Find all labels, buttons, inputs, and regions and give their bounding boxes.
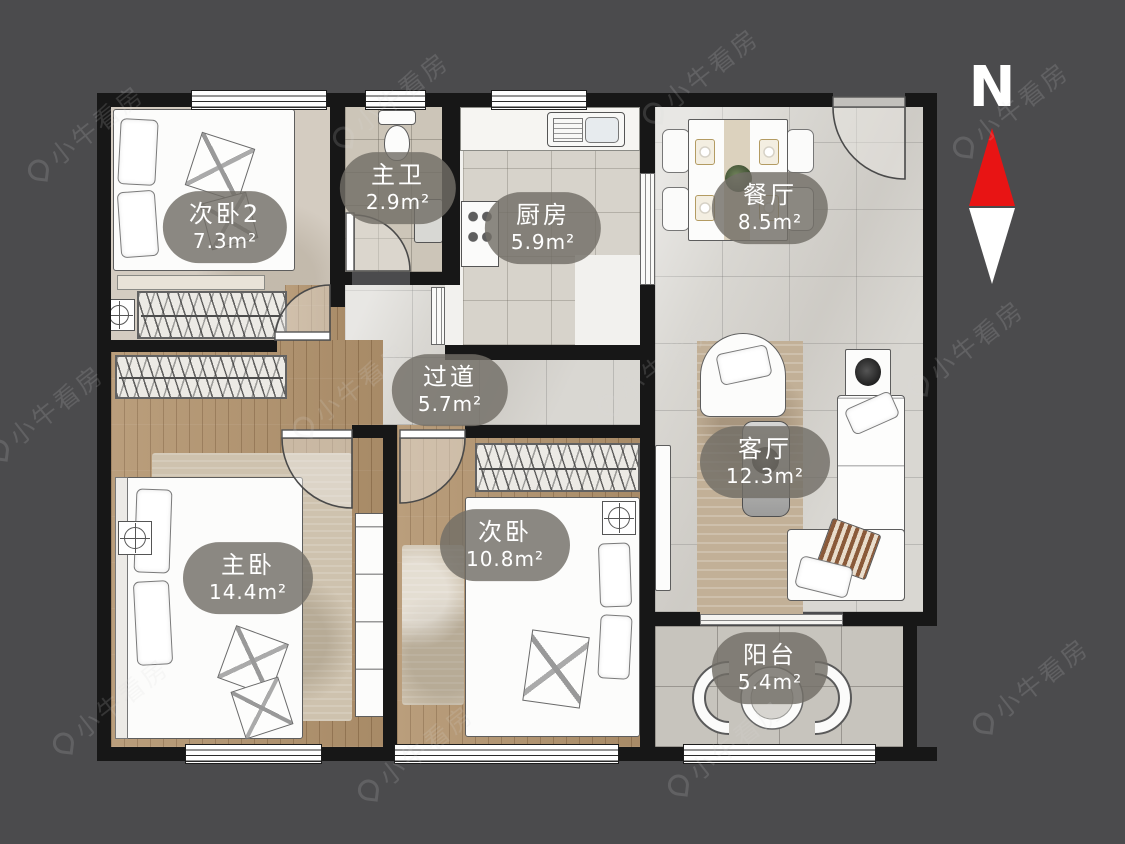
pin-icon <box>51 731 74 754</box>
door-leaf <box>275 332 330 340</box>
watermark: 小牛看房 <box>964 629 1096 744</box>
room-label-bedroom: 次卧 10.8m² <box>440 509 570 581</box>
room-label-living: 客厅 12.3m² <box>700 426 830 498</box>
compass-arrow-red <box>969 128 1015 206</box>
pin-icon <box>0 438 10 461</box>
floorplan-image: 次卧2 7.3m² 主卫 2.9m² 厨房 5.9m² 餐厅 8.5m² 过道 … <box>0 0 1125 844</box>
door-leaf <box>346 213 354 271</box>
room-label-hallway: 过道 5.7m² <box>392 354 508 426</box>
room-label-master-bath: 主卫 2.9m² <box>340 152 456 224</box>
room-label-dining: 餐厅 8.5m² <box>712 172 828 244</box>
pin-icon <box>971 711 994 734</box>
pin-icon <box>356 778 379 801</box>
room-label-bedroom2: 次卧2 7.3m² <box>163 191 287 263</box>
door-leaf <box>282 430 352 438</box>
compass-north-label: N <box>962 60 1022 116</box>
door-arc-master-bedroom <box>282 438 352 508</box>
pin-icon <box>666 773 689 796</box>
room-label-balcony: 阳台 5.4m² <box>712 632 828 704</box>
door-arc-entry <box>833 107 905 179</box>
room-label-master-bedroom: 主卧 14.4m² <box>183 542 313 614</box>
watermark: 小牛看房 <box>0 356 111 471</box>
floorplan: 次卧2 7.3m² 主卫 2.9m² 厨房 5.9m² 餐厅 8.5m² 过道 … <box>97 93 937 761</box>
pin-icon <box>26 158 49 181</box>
compass-arrow-icon <box>962 124 1022 288</box>
door-arc-bedroom <box>400 438 465 503</box>
entry-door-leaf <box>833 97 905 107</box>
compass-arrow-white <box>969 208 1015 284</box>
room-label-kitchen: 厨房 5.9m² <box>485 192 601 264</box>
door-leaf <box>400 430 465 438</box>
